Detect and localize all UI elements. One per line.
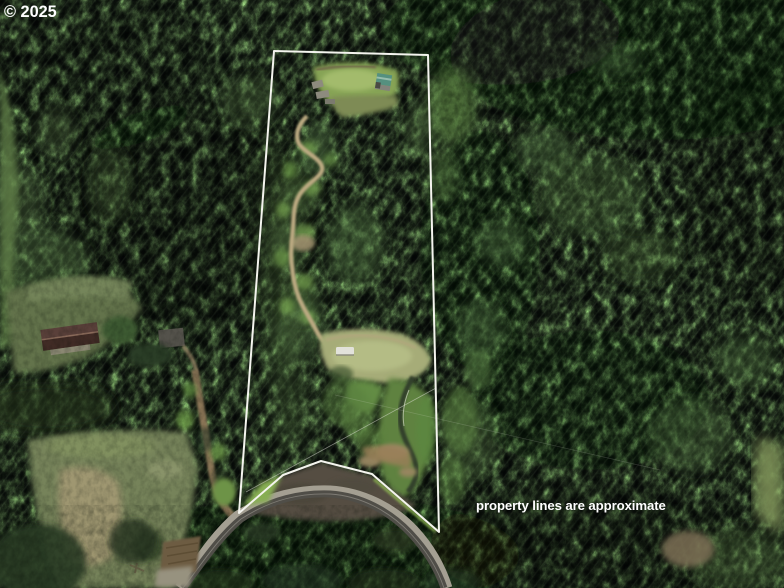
svg-text:property lines are approximate: property lines are approximate	[476, 498, 666, 513]
svg-text:© 2025: © 2025	[4, 3, 57, 21]
